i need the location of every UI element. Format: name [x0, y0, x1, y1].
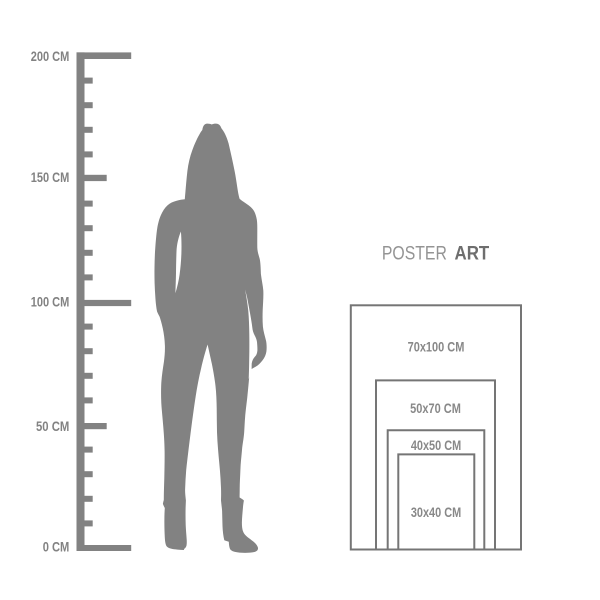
svg-text:40x50 CM: 40x50 CM [411, 437, 461, 453]
svg-text:0 CM: 0 CM [43, 539, 70, 554]
svg-text:150 CM: 150 CM [31, 170, 70, 185]
svg-text:50x70 CM: 50x70 CM [410, 400, 461, 416]
svg-text:70x100 CM: 70x100 CM [408, 338, 465, 354]
svg-text:ART: ART [455, 243, 490, 265]
svg-text:100 CM: 100 CM [31, 295, 70, 310]
svg-text:50 CM: 50 CM [36, 419, 69, 434]
svg-text:200 CM: 200 CM [31, 49, 70, 64]
svg-text:30x40 CM: 30x40 CM [411, 504, 461, 520]
svg-text:POSTER: POSTER [382, 243, 447, 265]
